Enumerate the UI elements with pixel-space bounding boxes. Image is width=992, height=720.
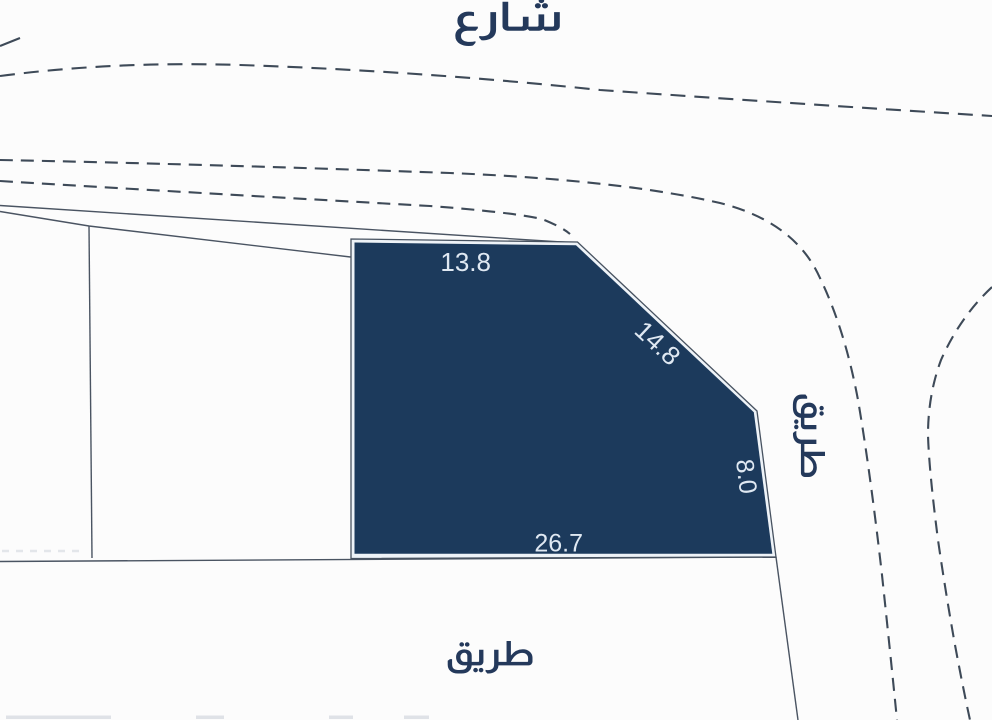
svg-text:26.7: 26.7 [534,530,583,558]
svg-text:8.0: 8.0 [730,458,762,496]
svg-text:13.8: 13.8 [440,247,491,277]
